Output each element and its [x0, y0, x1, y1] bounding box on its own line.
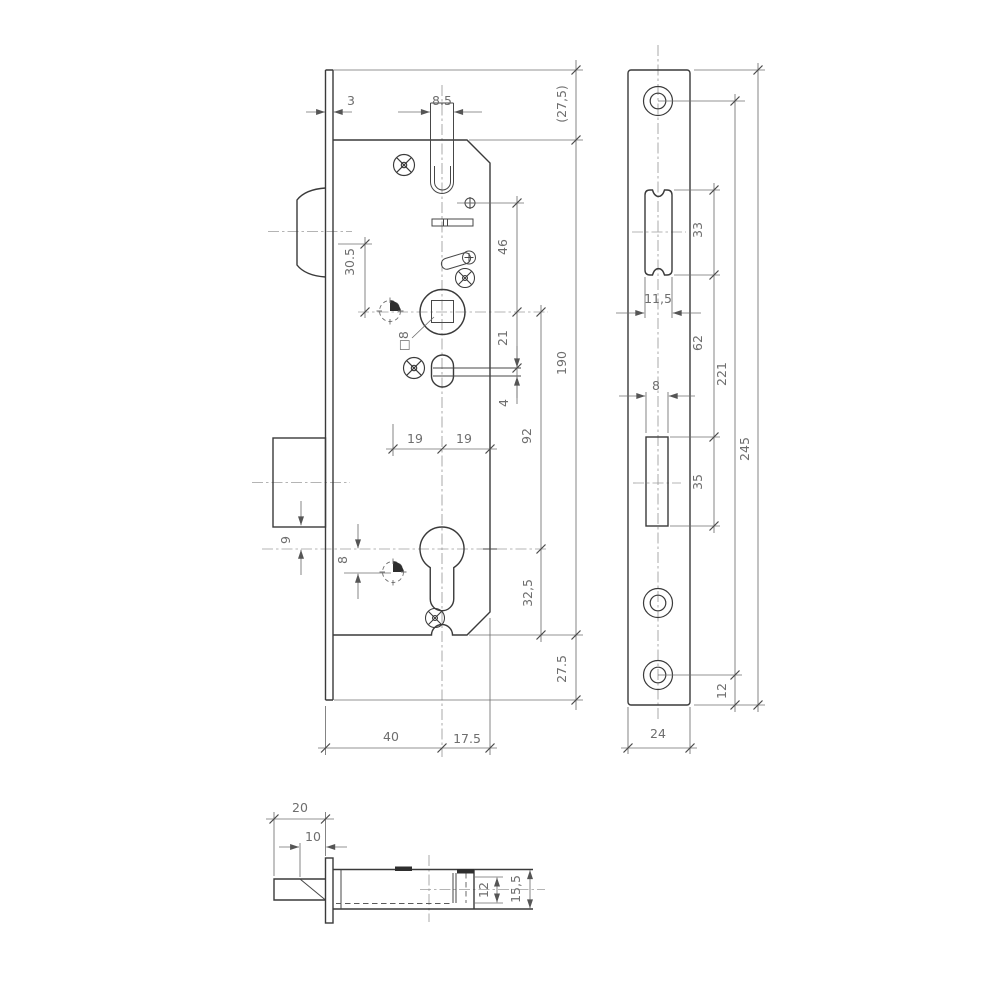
case-outline	[333, 140, 490, 635]
dim-tail-height: 15,5	[508, 875, 523, 903]
latch-bolt	[297, 188, 326, 277]
lock-drawing-svg: 3 8.5 (27,5) 46 30.5 □8 21 4 92 190 19 1…	[0, 0, 1000, 1000]
lever-pin	[440, 251, 472, 270]
dim-case-depth: 17.5	[453, 731, 481, 746]
latch-cutout	[645, 190, 672, 275]
dim-backset-right: 19	[456, 431, 472, 446]
pivot-marker-icon	[380, 559, 407, 586]
faceplate-view: 33 11,5 62 221 245 8 35 12 24	[616, 45, 765, 754]
spindle-square-hole	[432, 301, 454, 323]
dim-screw-spacing: 221	[714, 362, 729, 386]
spring-tab	[395, 867, 412, 872]
dim-cylinder-to-hub: 8	[335, 556, 350, 564]
dim-bolt-to-cylinder: 9	[278, 536, 293, 544]
dimension-lines	[616, 63, 758, 748]
dim-plate-offset: 3	[347, 93, 355, 108]
lock-case-view: 3 8.5 (27,5) 46 30.5 □8 21 4 92 190 19 1…	[252, 60, 583, 757]
dim-follower-to-slot: 21	[495, 330, 510, 346]
internal-parts	[394, 155, 477, 628]
slot-lines	[433, 368, 521, 376]
dim-plate-length: 245	[737, 437, 752, 461]
latch-detail-view: 20 10 12 15,5	[266, 800, 545, 923]
dim-ticks	[624, 66, 763, 753]
dim-head-length: 20	[292, 800, 308, 815]
dim-top-overhang: (27,5)	[554, 85, 569, 123]
screw-icon	[456, 269, 475, 288]
dim-follower-square: □8	[396, 331, 411, 351]
slider-plate	[432, 219, 473, 226]
faceplate-edge	[326, 70, 334, 700]
technical-drawing: 3 8.5 (27,5) 46 30.5 □8 21 4 92 190 19 1…	[0, 0, 1000, 1000]
dim-slot-gap: 4	[496, 399, 511, 407]
dimension-labels: 20 10 12 15,5	[292, 800, 523, 903]
dim-bolt-thickness: 12	[476, 882, 491, 898]
screw-icon	[404, 358, 425, 379]
dim-bolt-cutout-length: 35	[690, 474, 705, 490]
dim-latch-axis-to-follower: 30.5	[342, 248, 357, 276]
dim-screw-to-edge: 12	[714, 683, 729, 699]
dim-latch-width: 8.5	[432, 93, 452, 108]
dimension-labels: 3 8.5 (27,5) 46 30.5 □8 21 4 92 190 19 1…	[278, 85, 569, 746]
dim-case-length: 190	[554, 351, 569, 375]
extension-lines	[628, 70, 765, 754]
dim-latch-to-follower: 46	[495, 239, 510, 255]
dim-latch-cutout-width: 11,5	[644, 291, 672, 306]
extension-lines	[326, 70, 584, 755]
dim-cylinder-to-bottom: 32,5	[520, 579, 535, 607]
dim-bottom-overhang: 27.5	[554, 655, 569, 683]
dimension-labels: 33 11,5 62 221 245 8 35 12 24	[644, 222, 752, 741]
dim-follower-to-cylinder: 92	[519, 428, 534, 444]
oval-hole	[432, 355, 454, 387]
dim-bevel-length: 10	[305, 829, 321, 844]
dim-bolt-cutout-width: 8	[652, 378, 660, 393]
dim-plate-width: 24	[650, 726, 666, 741]
dim-latch-cutout-length: 33	[690, 222, 705, 238]
latch-head	[274, 879, 326, 900]
pivot-marker-icon	[377, 298, 404, 325]
dimension-lines	[301, 60, 576, 748]
spring-tab	[457, 869, 474, 874]
dim-backset-left: 19	[407, 431, 423, 446]
deadbolt-cutout	[646, 437, 668, 526]
dim-cutout-spacing: 62	[690, 335, 705, 351]
faceplate-section	[326, 858, 334, 923]
dim-backset: 40	[383, 729, 399, 744]
screw-icon	[394, 155, 415, 176]
centerlines	[252, 85, 548, 757]
